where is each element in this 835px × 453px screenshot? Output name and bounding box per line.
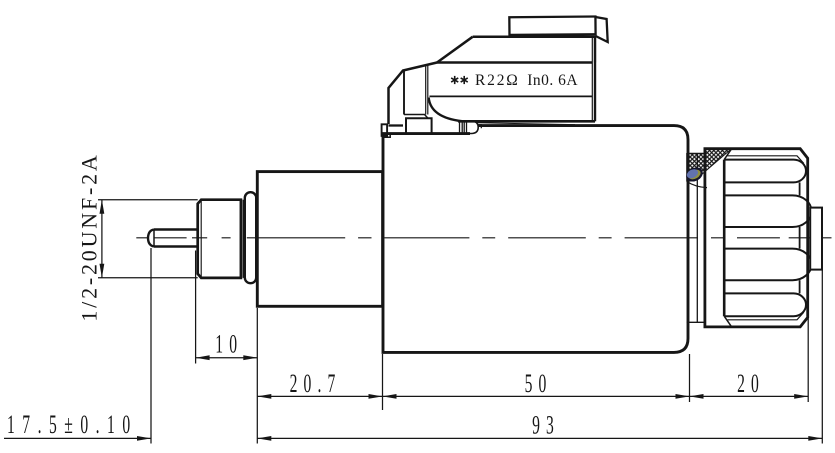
- svg-text:20.7: 20.7: [290, 369, 342, 398]
- svg-text:50: 50: [525, 369, 553, 398]
- svg-text:10: 10: [215, 330, 243, 359]
- svg-text:93: 93: [532, 410, 560, 439]
- svg-text:20: 20: [737, 369, 765, 398]
- svg-text:R22Ω: R22Ω: [475, 72, 520, 89]
- svg-text:In0. 6A: In0. 6A: [527, 72, 578, 89]
- svg-text:17.5±0.10: 17.5±0.10: [7, 410, 138, 439]
- svg-text:1/2-20UNF-2A: 1/2-20UNF-2A: [77, 152, 102, 321]
